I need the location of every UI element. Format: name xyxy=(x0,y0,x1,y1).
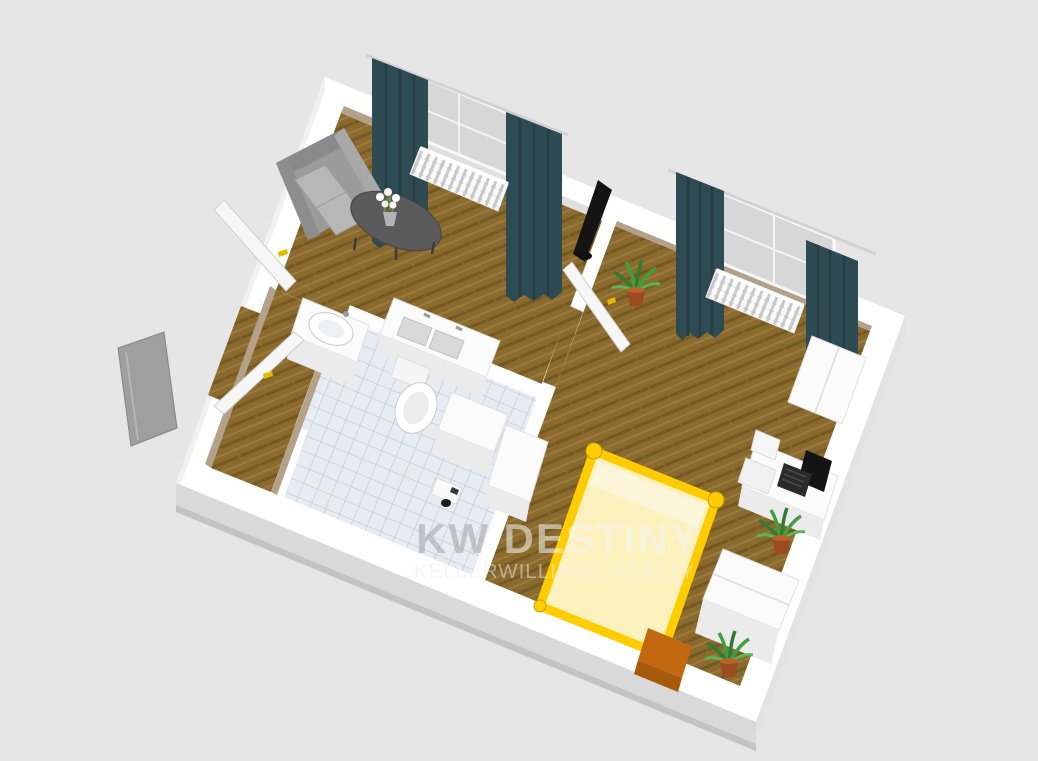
floorplan-render-canvas: KW DESTINY KELLERWILLIAMS REALTY xyxy=(0,0,1038,761)
watermark-line2: KELLERWILLIAMS REALTY xyxy=(414,560,695,583)
floorplan-3d-view: KW DESTINY KELLERWILLIAMS REALTY xyxy=(0,0,1038,761)
watermark: KW DESTINY KELLERWILLIAMS REALTY xyxy=(414,515,700,583)
watermark-line1: KW DESTINY xyxy=(416,515,700,562)
